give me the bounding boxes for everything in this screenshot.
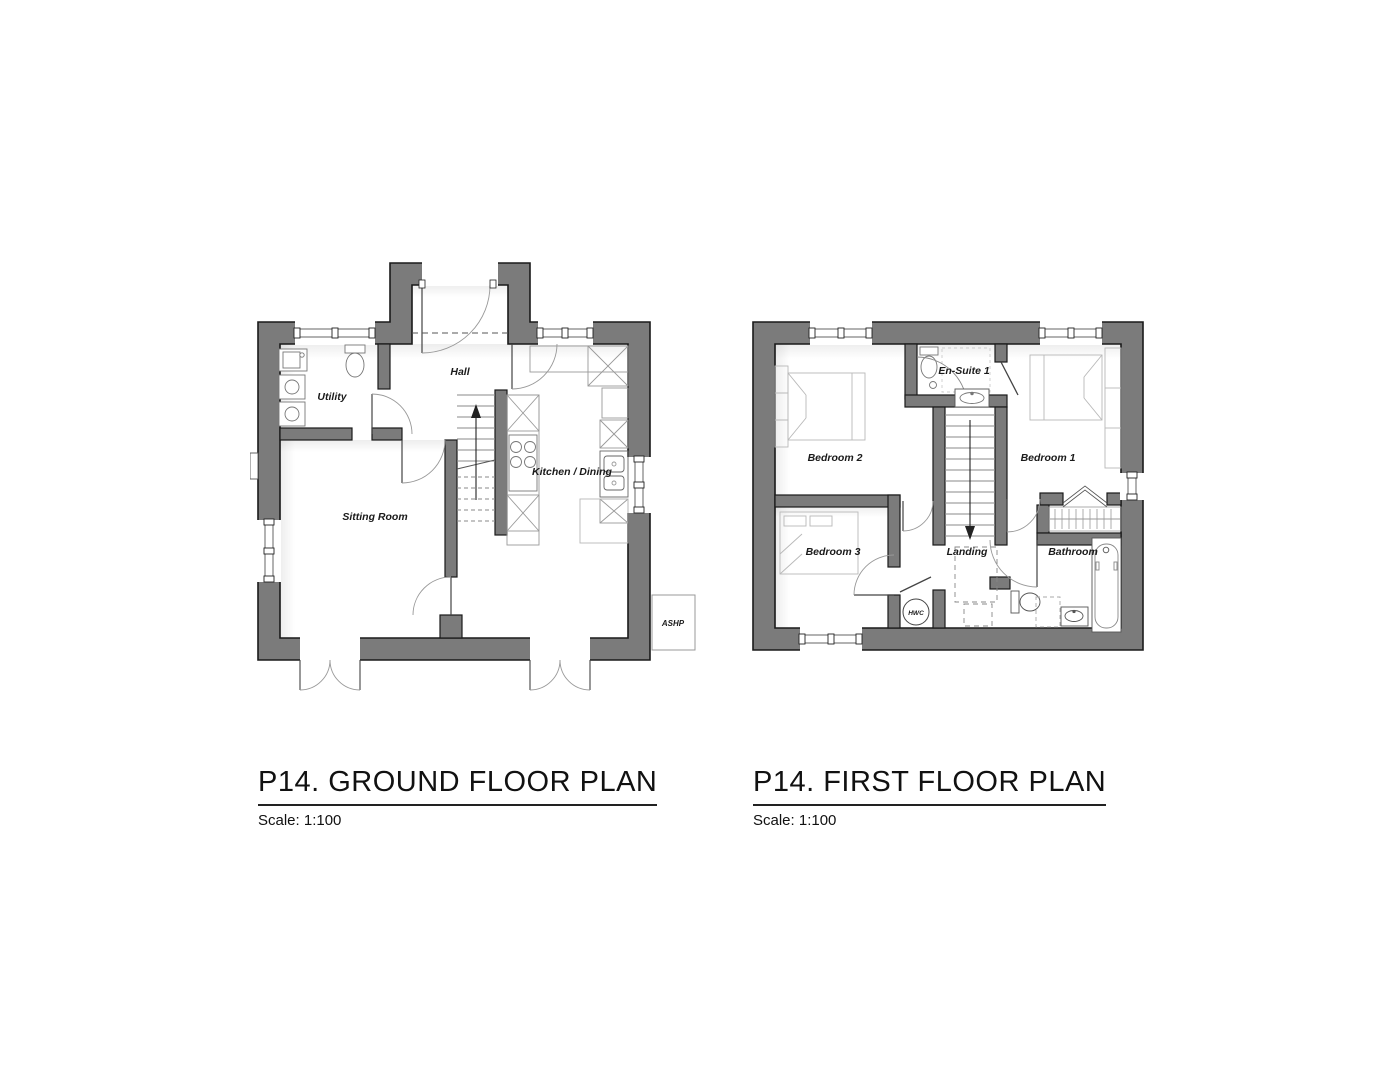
ff-staircase [945,415,995,540]
room-label-bathroom: Bathroom [1048,546,1098,558]
gf-ashp-unit: ASHP [652,595,695,650]
room-label-utility: Utility [317,391,347,403]
bathroom-wc-cistern [1011,591,1019,613]
hwc-label: HWC [908,610,924,617]
room-label-sitting-room: Sitting Room [342,511,407,523]
ff-interior-walls [775,344,1121,628]
utility-wc-cistern [345,345,365,353]
first-floor-plan-drawing: HWC [740,300,1160,680]
utility-wc [346,353,364,377]
room-label-bedroom1: Bedroom 1 [1021,452,1076,464]
ground-floor-plan-drawing: ASHP Utility Hall Kitchen / Dining Sitti… [250,255,710,695]
hob [509,435,537,491]
bed-bedroom2 [788,373,865,440]
room-label-ensuite1: En-Suite 1 [938,365,990,377]
first-floor-title: P14. FIRST FLOOR PLAN [753,766,1106,806]
room-label-hall: Hall [450,366,470,378]
wardrobe-doors [1063,486,1107,503]
room-label-kitchen-dining: Kitchen / Dining [532,466,613,478]
room-label-landing: Landing [947,546,988,558]
ensuite-wc [921,356,937,378]
ensuite-wc-cistern [920,347,938,355]
ff-hwc: HWC [903,599,929,625]
ff-stair-down-arrow [965,526,975,540]
gf-kitchen-units [507,346,628,545]
bed-bedroom1 [1030,355,1102,420]
ashp-label: ASHP [661,619,685,628]
ground-floor-title: P14. GROUND FLOOR PLAN [258,766,657,806]
gf-staircase [457,395,495,521]
bathroom-wc [1020,593,1040,611]
first-floor-title-block: P14. FIRST FLOOR PLAN Scale: 1:100 [753,766,1106,829]
ground-floor-scale: Scale: 1:100 [258,812,657,829]
first-floor-scale: Scale: 1:100 [753,812,1106,829]
ff-room-shading [775,344,1121,628]
ff-room-labels: Bedroom 2 En-Suite 1 Bedroom 1 Bedroom 3… [806,365,1098,558]
room-label-bedroom2: Bedroom 2 [808,452,863,464]
ground-floor-title-block: P14. GROUND FLOOR PLAN Scale: 1:100 [258,766,657,829]
drawing-sheet: ASHP Utility Hall Kitchen / Dining Sitti… [0,0,1400,1080]
room-label-bedroom3: Bedroom 3 [806,546,861,558]
gf-interior-walls [280,344,507,638]
